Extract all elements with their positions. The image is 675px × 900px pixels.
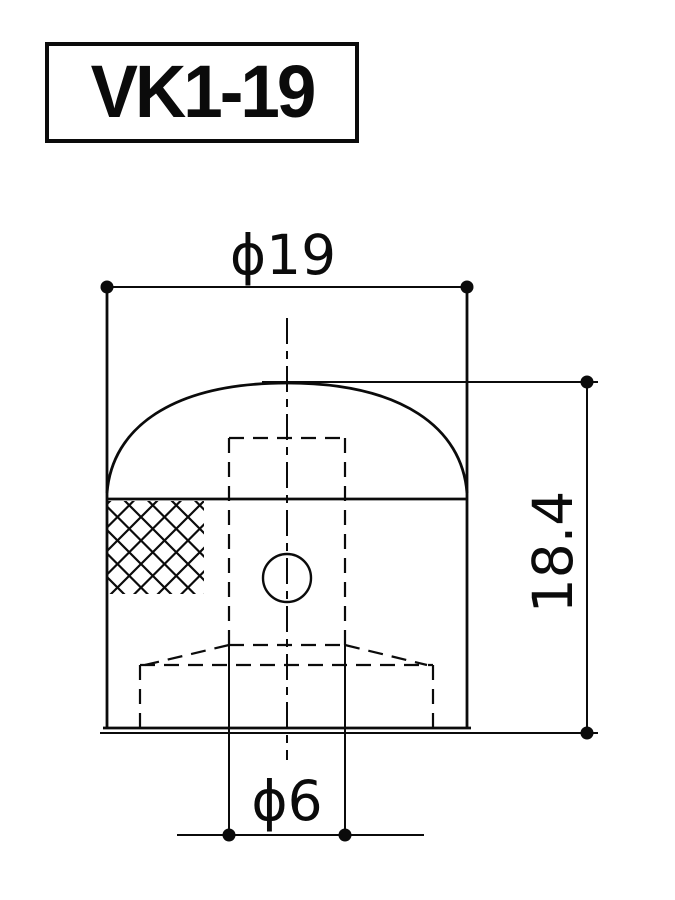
dim-dot — [223, 829, 236, 842]
flare-left-hidden-line — [145, 645, 229, 665]
dim-dot — [581, 727, 594, 740]
knurling-crosshatch — [108, 501, 204, 594]
knob-dimension-drawing: ϕ19 18.4 ϕ6 — [0, 0, 675, 900]
dim-label-diameter-6: ϕ6 — [251, 769, 322, 833]
dim-dot — [461, 281, 474, 294]
dimension-diameter-6: ϕ6 — [177, 645, 424, 842]
technical-drawing-page: VK1-19 — [0, 0, 675, 900]
dim-dot — [581, 376, 594, 389]
dim-dot — [339, 829, 352, 842]
dim-label-diameter-19: ϕ19 — [230, 223, 336, 287]
dim-label-height-18-4: 18.4 — [521, 491, 585, 613]
flare-right-hidden-line — [345, 645, 427, 665]
dimension-diameter-19: ϕ19 — [101, 223, 474, 294]
dim-dot — [101, 281, 114, 294]
